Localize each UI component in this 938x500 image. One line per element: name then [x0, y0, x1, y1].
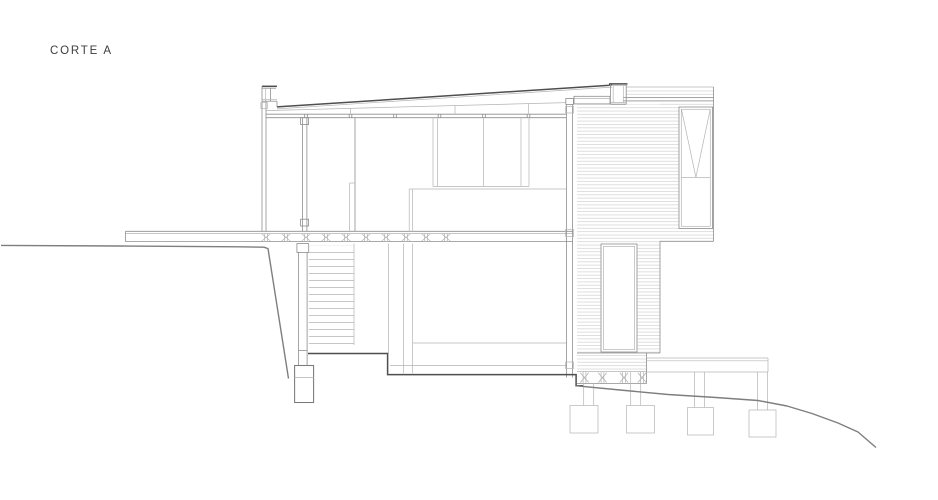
- window-upper: [679, 107, 713, 229]
- deck-footings: [570, 406, 776, 438]
- roof-edge-beam: [574, 96, 610, 104]
- drawing-canvas: CORTE A: [0, 0, 938, 500]
- left-footing: [295, 366, 314, 403]
- lower-floor: [295, 244, 583, 403]
- upper-column: [301, 118, 309, 232]
- window-lower: [601, 244, 637, 352]
- ground-line-right: [577, 386, 877, 448]
- floor-slab: [308, 354, 583, 386]
- deck-posts: [584, 372, 768, 410]
- left-parapet: [262, 86, 277, 107]
- ceiling: [266, 104, 566, 118]
- floor-joists: [262, 233, 450, 241]
- ground-line-left: [1, 245, 289, 378]
- upper-partitions: [350, 118, 567, 232]
- stairs: [309, 246, 354, 345]
- column-joint: [297, 244, 309, 253]
- section-drawing: [0, 0, 938, 500]
- floor-band: [126, 231, 574, 242]
- left-wall: [261, 101, 267, 231]
- deck-joists: [580, 372, 646, 383]
- roof: [266, 85, 612, 111]
